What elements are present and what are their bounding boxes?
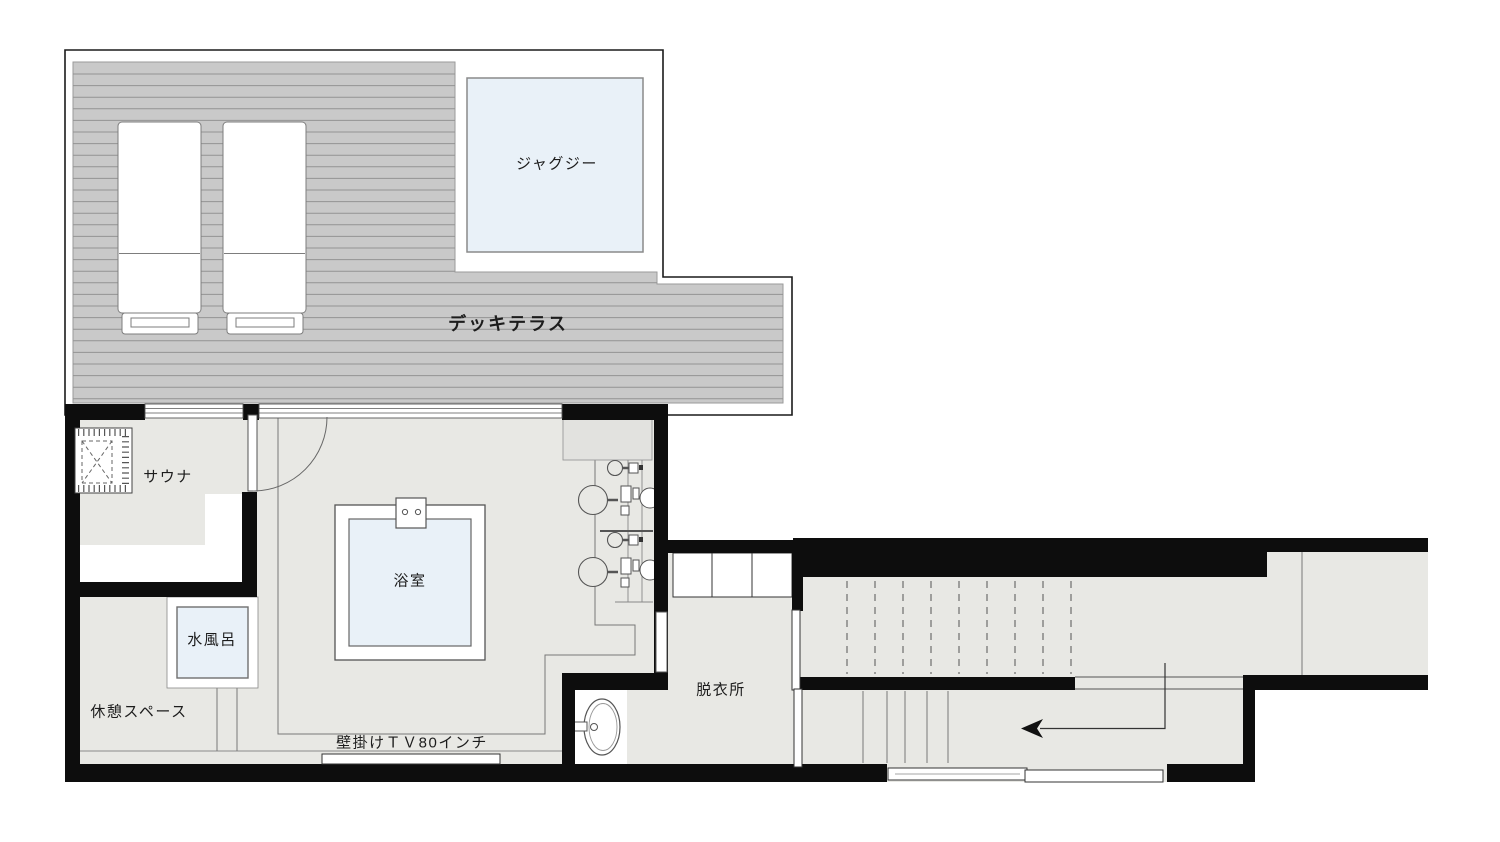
bath-label: 浴室 bbox=[393, 574, 426, 589]
lounger-icon bbox=[118, 122, 201, 334]
cold-bath-label: 水風呂 bbox=[187, 633, 237, 648]
sauna-bench bbox=[205, 494, 245, 545]
sauna-heater-icon bbox=[75, 428, 132, 493]
shower-counter bbox=[563, 419, 652, 460]
deck-terrace-area bbox=[65, 50, 792, 415]
shelf-unit bbox=[673, 553, 792, 597]
stair-hall-floor bbox=[803, 577, 1428, 675]
tv-icon bbox=[322, 754, 500, 764]
door-panel bbox=[656, 612, 667, 672]
sliding-door-icon bbox=[888, 768, 1163, 782]
sauna-bench bbox=[78, 545, 245, 582]
wall-tv-label: 壁掛けＴＶ80インチ bbox=[336, 736, 488, 751]
dressing-room-label: 脱衣所 bbox=[696, 683, 746, 698]
rest-space-label: 休憩スペース bbox=[90, 705, 187, 720]
window-icon bbox=[259, 404, 562, 418]
stair-hall-floor bbox=[1267, 550, 1428, 577]
floorplan-svg bbox=[0, 0, 1500, 842]
sauna-label: サウナ bbox=[143, 470, 193, 485]
dressing-room-interior bbox=[673, 553, 792, 597]
sliding-door-icon bbox=[792, 610, 802, 767]
lounger-icon bbox=[223, 122, 306, 334]
window-icon bbox=[145, 404, 243, 418]
floorplan: ジャグジー デッキテラス サウナ 浴室 水風呂 休憩スペース 壁掛けＴＶ80イン… bbox=[0, 0, 1500, 842]
deck-terrace-label: デッキテラス bbox=[448, 315, 568, 333]
jacuzzi-label: ジャグジー bbox=[516, 157, 598, 172]
